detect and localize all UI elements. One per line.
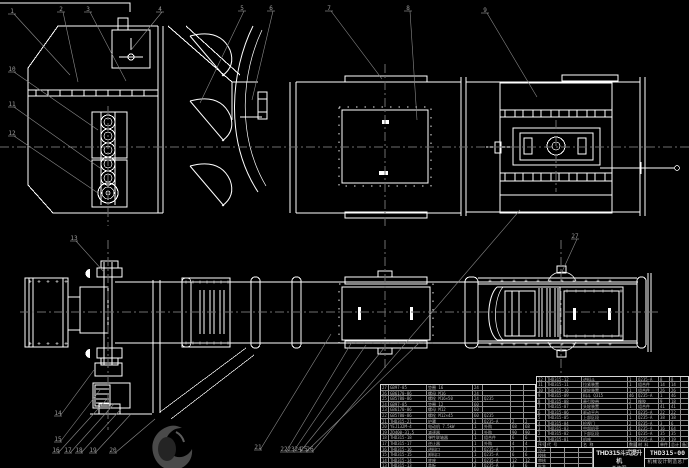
table-cell [524, 413, 536, 418]
table-cell: 螺栓 M12×45 [427, 413, 473, 418]
table-cell [681, 415, 689, 419]
callout-number-21: 21 [254, 444, 262, 451]
table-cell: 60 [473, 407, 483, 412]
bolt-mark [220, 342, 223, 345]
table-cell: THD315-04 [546, 421, 582, 425]
callout-number-20: 20 [109, 447, 117, 454]
table-cell: 1 [473, 430, 483, 435]
table-cell: 1 [473, 441, 483, 446]
leader-line [252, 11, 273, 100]
table-cell: 16 [659, 426, 670, 430]
bolt-mark [56, 280, 59, 283]
table-cell: 垫圈 12 [427, 402, 473, 407]
table-cell: 橡胶 [637, 399, 659, 403]
table-cell: 22 [670, 410, 681, 414]
top-view-elevation [0, 3, 689, 228]
table-cell: 1 [473, 419, 483, 424]
leader-line [14, 14, 70, 75]
leader-line [331, 11, 382, 79]
table-cell: Q235-A [637, 421, 659, 425]
callout-number-12: 12 [8, 130, 16, 137]
table-cell: 38 [670, 415, 681, 419]
table-cell: 1 [473, 435, 483, 440]
bolt-mark [185, 342, 188, 345]
callout-number-19: 19 [89, 447, 97, 454]
table-cell: 盖板 [427, 463, 473, 468]
leader-line [200, 11, 244, 103]
table-cell: 12 [524, 458, 536, 463]
bolt-mark [566, 290, 569, 293]
table-cell: 64 [670, 426, 681, 430]
table-cell: 1 [473, 458, 483, 463]
table-cell: 外购 [483, 441, 511, 446]
table-cell [681, 404, 689, 408]
table-cell: 电动机 7.5kW [427, 424, 473, 429]
inspection-door-plan [339, 271, 433, 354]
table-cell [524, 385, 536, 390]
table-cell: 19 [659, 437, 670, 441]
table-cell: 14 [381, 458, 389, 463]
bolt-mark [185, 281, 188, 284]
table-cell: 1 [628, 382, 637, 386]
bolt-mark [206, 342, 209, 345]
callout-number-14: 14 [54, 410, 62, 417]
table-cell [681, 388, 689, 392]
leader-line [90, 12, 126, 81]
table-cell: THD315-01 [546, 437, 582, 441]
boot-cover-plate [560, 287, 623, 340]
bolt-mark [213, 281, 216, 284]
table-cell: 18 [670, 399, 681, 403]
table-cell [681, 377, 689, 381]
table-cell [579, 458, 593, 462]
table-cell: 检视门 [582, 421, 628, 425]
table-cell: 12 [511, 458, 524, 463]
leader-line [14, 72, 98, 130]
table-cell: 进料口 [427, 447, 473, 452]
table-cell: ZQ400-31.5 [389, 430, 427, 435]
leader-line [14, 107, 100, 168]
table-cell: 1 [628, 415, 637, 419]
table-cell: 6 [524, 452, 536, 457]
table-cell: 尾轮装置 [582, 388, 628, 392]
table-cell: THD315-21 [389, 419, 427, 424]
table-cell: 24 [473, 391, 483, 396]
drawing-number-cell: THD315-00 机械设计制造总厂 [645, 448, 689, 467]
table-cell: 3 [537, 426, 546, 430]
table-cell: 拉紧装置 [582, 382, 628, 386]
bolt-mark [227, 342, 230, 345]
table-cell [483, 391, 511, 396]
leader-line [260, 334, 331, 450]
table-cell: 驱动平台 [582, 410, 628, 414]
bolt-mark [575, 290, 578, 293]
callout-number-10: 10 [8, 66, 16, 73]
callout-number-7: 7 [327, 5, 331, 12]
table-cell: 螺栓 M16×50 [427, 396, 473, 401]
table-cell [681, 426, 689, 430]
table-cell: 23 [381, 407, 389, 412]
table-cell [511, 391, 524, 396]
bolt-mark [593, 290, 596, 293]
drawing-number: THD315-00 [645, 448, 689, 459]
table-cell: Q235-A [637, 377, 659, 381]
table-cell: Q235 [483, 396, 511, 401]
bolt-mark [620, 290, 623, 293]
ink-smudge [152, 426, 192, 468]
table-cell: 68 [524, 424, 536, 429]
table-cell: 2 [473, 463, 483, 468]
table-cell: THD315-08 [546, 399, 582, 403]
bolt-mark [566, 335, 569, 338]
table-cell: Q235 [483, 413, 511, 418]
callout-number-2: 2 [59, 6, 63, 13]
table-cell [565, 448, 579, 452]
table-cell [681, 393, 689, 397]
drawing-title-cell: THD315斗式提升机 总装图 [594, 448, 645, 467]
table-cell: THD315-17 [389, 441, 427, 446]
table-cell: Q235-A [483, 419, 511, 424]
table-cell: 批准 [537, 464, 551, 467]
table-cell: 13 [381, 463, 389, 468]
bolt-mark [575, 335, 578, 338]
take-up-device [486, 128, 680, 174]
table-cell: 22 [659, 410, 670, 414]
table-cell: 螺母 M12 [427, 407, 473, 412]
table-cell: GB5780-86 [389, 413, 427, 418]
head-flange-plate [182, 278, 230, 347]
table-cell: 料斗 Q315 [582, 393, 628, 397]
table-cell: 68 [511, 424, 524, 429]
leader-line [131, 12, 162, 50]
table-cell: 16 [381, 447, 389, 452]
leader-line [63, 12, 78, 82]
leader-line [487, 13, 537, 97]
table-cell: 外购 [483, 424, 511, 429]
table-cell [511, 396, 524, 401]
table-cell: 1 [473, 452, 483, 457]
table-cell: 2 [537, 431, 546, 435]
table-cell [565, 458, 579, 462]
table-cell: Q235-A [637, 410, 659, 414]
bolt-mark [47, 342, 50, 345]
table-cell [681, 399, 689, 403]
table-cell: 15 [381, 452, 389, 457]
table-cell: 进料斗 [582, 377, 628, 381]
callout-number-13: 13 [70, 235, 78, 242]
table-cell: 24 [381, 402, 389, 407]
table-cell: 18 [381, 435, 389, 440]
table-cell: 41 [670, 404, 681, 408]
table-cell: 25 [381, 396, 389, 401]
bolt-mark [192, 342, 195, 345]
callout-number-17: 17 [64, 447, 72, 454]
table-cell: 60 [473, 413, 483, 418]
table-cell: 校核 [537, 453, 551, 457]
table-cell: 螺母 M16 [427, 391, 473, 396]
table-cell: 2 [628, 399, 637, 403]
table-cell: 14 [659, 382, 670, 386]
callout-number-1: 1 [10, 8, 14, 15]
table-cell: Q235-A [637, 431, 659, 435]
table-cell: THD315-06 [546, 410, 582, 414]
table-cell: 38 [659, 415, 670, 419]
table-cell [551, 464, 565, 467]
table-cell: 牵引胶带 [582, 399, 628, 403]
table-cell: 6 [524, 463, 536, 468]
table-cell: Q235-A [483, 458, 511, 463]
table-cell: 41 [659, 404, 670, 408]
table-cell [483, 407, 511, 412]
table-cell: 逆止器 [427, 441, 473, 446]
bolt-mark [192, 281, 195, 284]
table-cell: 8 [659, 377, 670, 381]
table-cell: 12 [537, 377, 546, 381]
table-cell: THD315-12 [546, 377, 582, 381]
callout-number-26: 26 [306, 446, 314, 453]
table-cell [511, 385, 524, 390]
bolt-mark [199, 342, 202, 345]
table-cell: 17 [381, 441, 389, 446]
table-cell: GB97-85 [389, 385, 427, 390]
callout-number-8: 8 [406, 5, 410, 12]
table-cell: 14 [670, 382, 681, 386]
table-cell: Q235-A [483, 447, 511, 452]
table-cell: 护罩 [427, 419, 473, 424]
table-cell: 卸料口 [427, 452, 473, 457]
table-cell: Q235-A [637, 426, 659, 430]
table-cell: 5 [537, 415, 546, 419]
table-cell [681, 421, 689, 425]
table-cell: THD315-15 [389, 452, 427, 457]
table-cell [551, 448, 565, 452]
callout-number-5: 5 [240, 5, 244, 12]
bom-table-left: 27GB97-85垫圈 162426GB6170-86螺母 M162425GB5… [380, 384, 536, 468]
table-cell: GB97-85 [389, 402, 427, 407]
table-cell: THD315-14 [389, 458, 427, 463]
table-cell: 组合件 [483, 435, 511, 440]
table-cell: THD315-09 [546, 393, 582, 397]
table-cell: 1 [628, 431, 637, 435]
table-cell: 3 [659, 421, 670, 425]
table-cell: 1 [628, 437, 637, 441]
table-cell: 中部机壳 [582, 426, 628, 430]
callout-number-18: 18 [75, 447, 83, 454]
table-cell: 27 [381, 385, 389, 390]
bolt-mark [611, 335, 614, 338]
discharge-spout [168, 26, 267, 120]
bolt-mark [584, 335, 587, 338]
table-cell: 10 [537, 388, 546, 392]
leader-line [561, 239, 577, 274]
table-cell: 4 [628, 426, 637, 430]
table-cell [681, 410, 689, 414]
bolt-mark [602, 290, 605, 293]
view-arrow-icon [86, 349, 91, 358]
title-block: 设计校核审核批准 THD315斗式提升机 总装图 THD315-00 机械设计制… [536, 447, 689, 468]
view-arrow-icon [86, 269, 91, 278]
table-cell: THD315-05 [546, 415, 582, 419]
leader-line [70, 404, 114, 453]
table-cell [524, 407, 536, 412]
table-cell: THD315-11 [546, 382, 582, 386]
table-cell: THD315-07 [546, 404, 582, 408]
table-cell: 46 [670, 393, 681, 397]
table-cell [524, 402, 536, 407]
table-cell: 9 [659, 399, 670, 403]
bom-table-right: 12THD315-12进料斗1Q235-A8811THD315-11拉紧装置1组… [536, 376, 689, 448]
table-cell: 2 [524, 419, 536, 424]
table-cell: 90 [524, 430, 536, 435]
table-row: 批准 [537, 464, 593, 467]
bolt-mark [602, 335, 605, 338]
table-cell: 6 [511, 452, 524, 457]
table-cell: 组合件 [637, 382, 659, 386]
leader-line [76, 241, 104, 272]
callout-number-3: 3 [86, 6, 90, 13]
table-cell: 11 [537, 382, 546, 386]
table-cell: GB6170-86 [389, 407, 427, 412]
table-cell [551, 458, 565, 462]
table-cell: YEJ132M-4 [389, 424, 427, 429]
table-cell: 4 [537, 421, 546, 425]
leader-line [14, 136, 98, 193]
table-cell: 19 [381, 430, 389, 435]
table-cell: THD315-03 [546, 426, 582, 430]
table-cell: 减速器 [427, 430, 473, 435]
product-name: THD315斗式提升机 [594, 450, 644, 466]
callout-number-16: 16 [52, 447, 60, 454]
table-cell: 组合件 [637, 404, 659, 408]
callout-number-4: 4 [158, 6, 162, 13]
bolt-mark [220, 281, 223, 284]
table-cell: 1 [473, 447, 483, 452]
table-cell: Q235-A [637, 393, 659, 397]
bolt-mark [65, 342, 68, 345]
table-cell: 底座 [427, 458, 473, 463]
table-cell [483, 385, 511, 390]
table-cell: 2 [511, 419, 524, 424]
table-cell: THD315-18 [389, 435, 427, 440]
table-cell [483, 402, 511, 407]
table-cell: Q235-A [637, 415, 659, 419]
bolt-mark [199, 281, 202, 284]
bolt-mark [65, 280, 68, 283]
table-cell: THD315-13 [389, 463, 427, 468]
table-cell [511, 402, 524, 407]
table-cell: 4 [511, 441, 524, 446]
table-cell [524, 396, 536, 401]
table-cell: 6 [537, 410, 546, 414]
table-cell [551, 453, 565, 457]
table-cell: 19 [670, 437, 681, 441]
table-cell: 1 [473, 424, 483, 429]
leader-line [293, 345, 366, 452]
table-cell [565, 464, 579, 467]
table-cell: 26 [381, 391, 389, 396]
table-cell [511, 407, 524, 412]
bolt-mark [206, 281, 209, 284]
table-cell: GB6170-86 [389, 391, 427, 396]
table-cell: 1 [628, 410, 637, 414]
tail-section-elevation [461, 75, 680, 216]
table-cell: 弹性联轴器 [427, 435, 473, 440]
table-cell: 9 [537, 393, 546, 397]
table-cell: 1 [659, 393, 670, 397]
table-cell: 垫圈 16 [427, 385, 473, 390]
table-cell: 1 [537, 437, 546, 441]
leader-line [60, 390, 100, 442]
bolt-mark [213, 342, 216, 345]
table-cell: 2 [628, 421, 637, 425]
leader-line [410, 11, 417, 120]
table-cell: 设计 [537, 448, 551, 452]
table-cell: 7 [524, 447, 536, 452]
table-cell: 头轮装置 [582, 404, 628, 408]
callout-number-15: 15 [54, 436, 62, 443]
table-cell: 上部区段 [582, 415, 628, 419]
callout-number-9: 9 [483, 7, 487, 14]
table-cell: 6 [511, 435, 524, 440]
table-cell [681, 382, 689, 386]
table-cell: 35 [659, 431, 670, 435]
table-cell: 3 [511, 463, 524, 468]
table-cell: 26 [659, 388, 670, 392]
leader-line [286, 342, 352, 452]
bolt-mark [56, 342, 59, 345]
table-cell [579, 448, 593, 452]
table-cell: 90 [511, 430, 524, 435]
table-cell: 下部区段 [582, 431, 628, 435]
table-cell [579, 464, 593, 467]
table-cell: 26 [670, 388, 681, 392]
leader-line [60, 370, 94, 416]
table-cell: 21 [381, 419, 389, 424]
table-cell: 35 [670, 431, 681, 435]
table-row: 13THD315-13盖板2Q235-A36 [381, 463, 535, 468]
bolt-mark [584, 290, 587, 293]
table-cell: 6 [670, 421, 681, 425]
table-cell: 1 [628, 404, 637, 408]
table-cell: 4 [524, 441, 536, 446]
leader-line [58, 398, 108, 453]
company-name: 机械设计制造总厂 [645, 459, 689, 467]
table-cell: 60 [473, 402, 483, 407]
cad-drawing-sheet: 1234567891011121314151617181920212223242… [0, 0, 689, 468]
table-cell: 20 [381, 424, 389, 429]
table-cell: 8 [537, 399, 546, 403]
table-cell: 外购 [483, 430, 511, 435]
table-cell: 24 [473, 396, 483, 401]
bolt-mark [593, 335, 596, 338]
table-cell: 1 [628, 377, 637, 381]
buckets-elevation [190, 26, 266, 206]
table-cell: 46 [628, 393, 637, 397]
bolt-mark [611, 290, 614, 293]
table-cell: Q235-A [637, 437, 659, 441]
callout-number-27: 27 [571, 233, 579, 240]
drawing-type: 总装图 [594, 466, 644, 467]
sheet-frame-corner [0, 3, 130, 12]
table-cell [681, 431, 689, 435]
table-cell: 24 [473, 385, 483, 390]
table-cell: Q235-A [483, 452, 511, 457]
table-cell: Q235-A [483, 463, 511, 468]
table-cell: 审核 [537, 458, 551, 462]
table-cell: 7 [537, 404, 546, 408]
table-cell [511, 413, 524, 418]
table-cell: 机座 [582, 437, 628, 441]
